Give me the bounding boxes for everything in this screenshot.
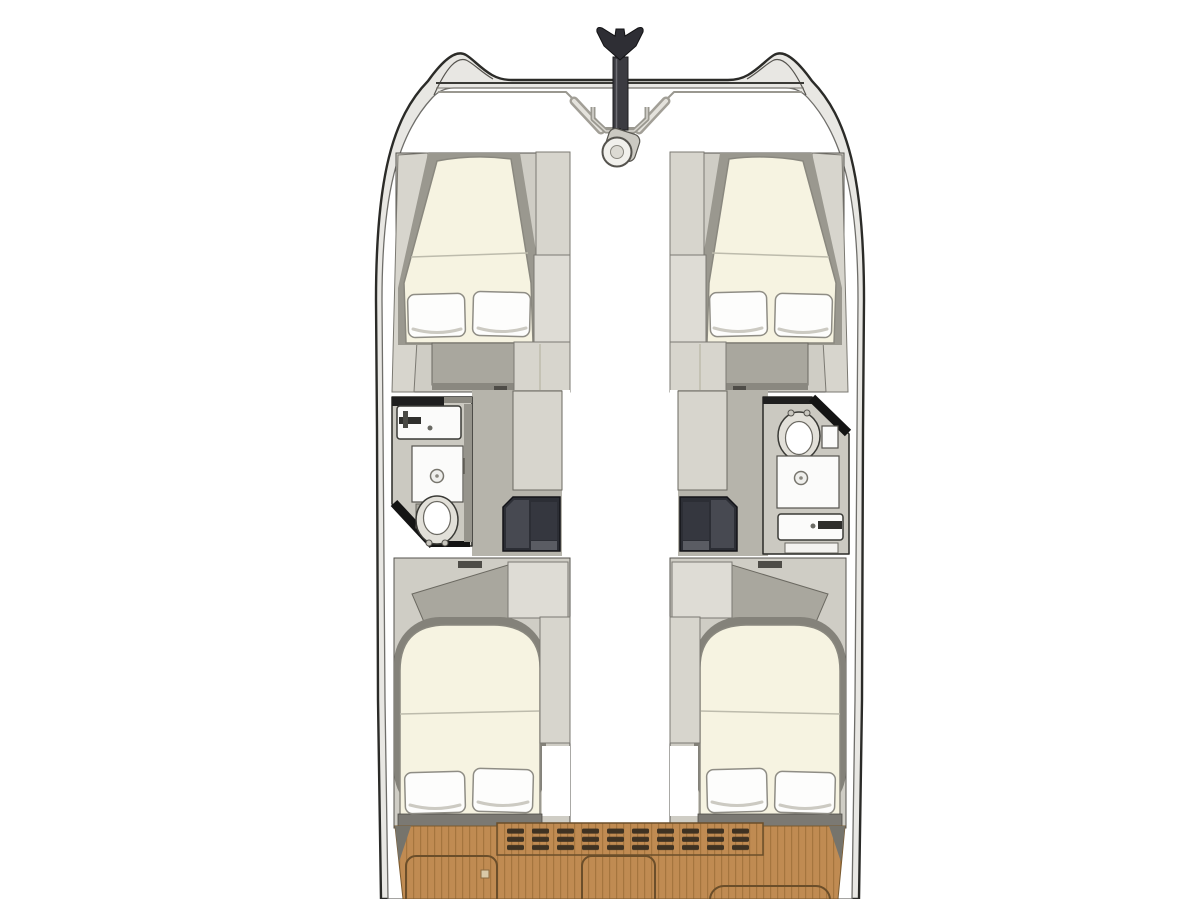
- toilet-bowl: [424, 502, 451, 535]
- bowsprit: [613, 57, 628, 130]
- head-bulkhead: [392, 397, 444, 406]
- shower-drain-center: [435, 474, 439, 478]
- vanity-drawer: [785, 543, 838, 553]
- shower-drain-center: [799, 476, 803, 480]
- windlass-hub: [611, 146, 624, 159]
- toilet-hinge: [804, 410, 810, 416]
- head-bulkhead-light: [444, 397, 472, 403]
- faucet-icon: [818, 521, 842, 529]
- hatch-latch: [481, 870, 489, 878]
- vent-grate-slats: [506, 827, 755, 852]
- faucet-icon: [399, 417, 421, 424]
- shower-floor: [777, 456, 839, 508]
- anchor-icon: [597, 28, 643, 61]
- head-starboard: [763, 397, 849, 554]
- toilet-cistern: [822, 426, 838, 448]
- boat-floor-plan: [0, 0, 1200, 899]
- toilet-bowl: [786, 422, 813, 455]
- faucet-lever: [403, 411, 408, 428]
- sink-drain: [811, 524, 816, 529]
- boat-floor-plan-canvas: [0, 0, 1200, 899]
- head-door-wall: [464, 404, 472, 542]
- toilet-hinge: [426, 540, 432, 546]
- cockpit-deck: [395, 823, 845, 899]
- sink-drain: [428, 426, 433, 431]
- toilet-hinge: [442, 540, 448, 546]
- toilet-hinge: [788, 410, 794, 416]
- head-bulkhead: [763, 397, 812, 404]
